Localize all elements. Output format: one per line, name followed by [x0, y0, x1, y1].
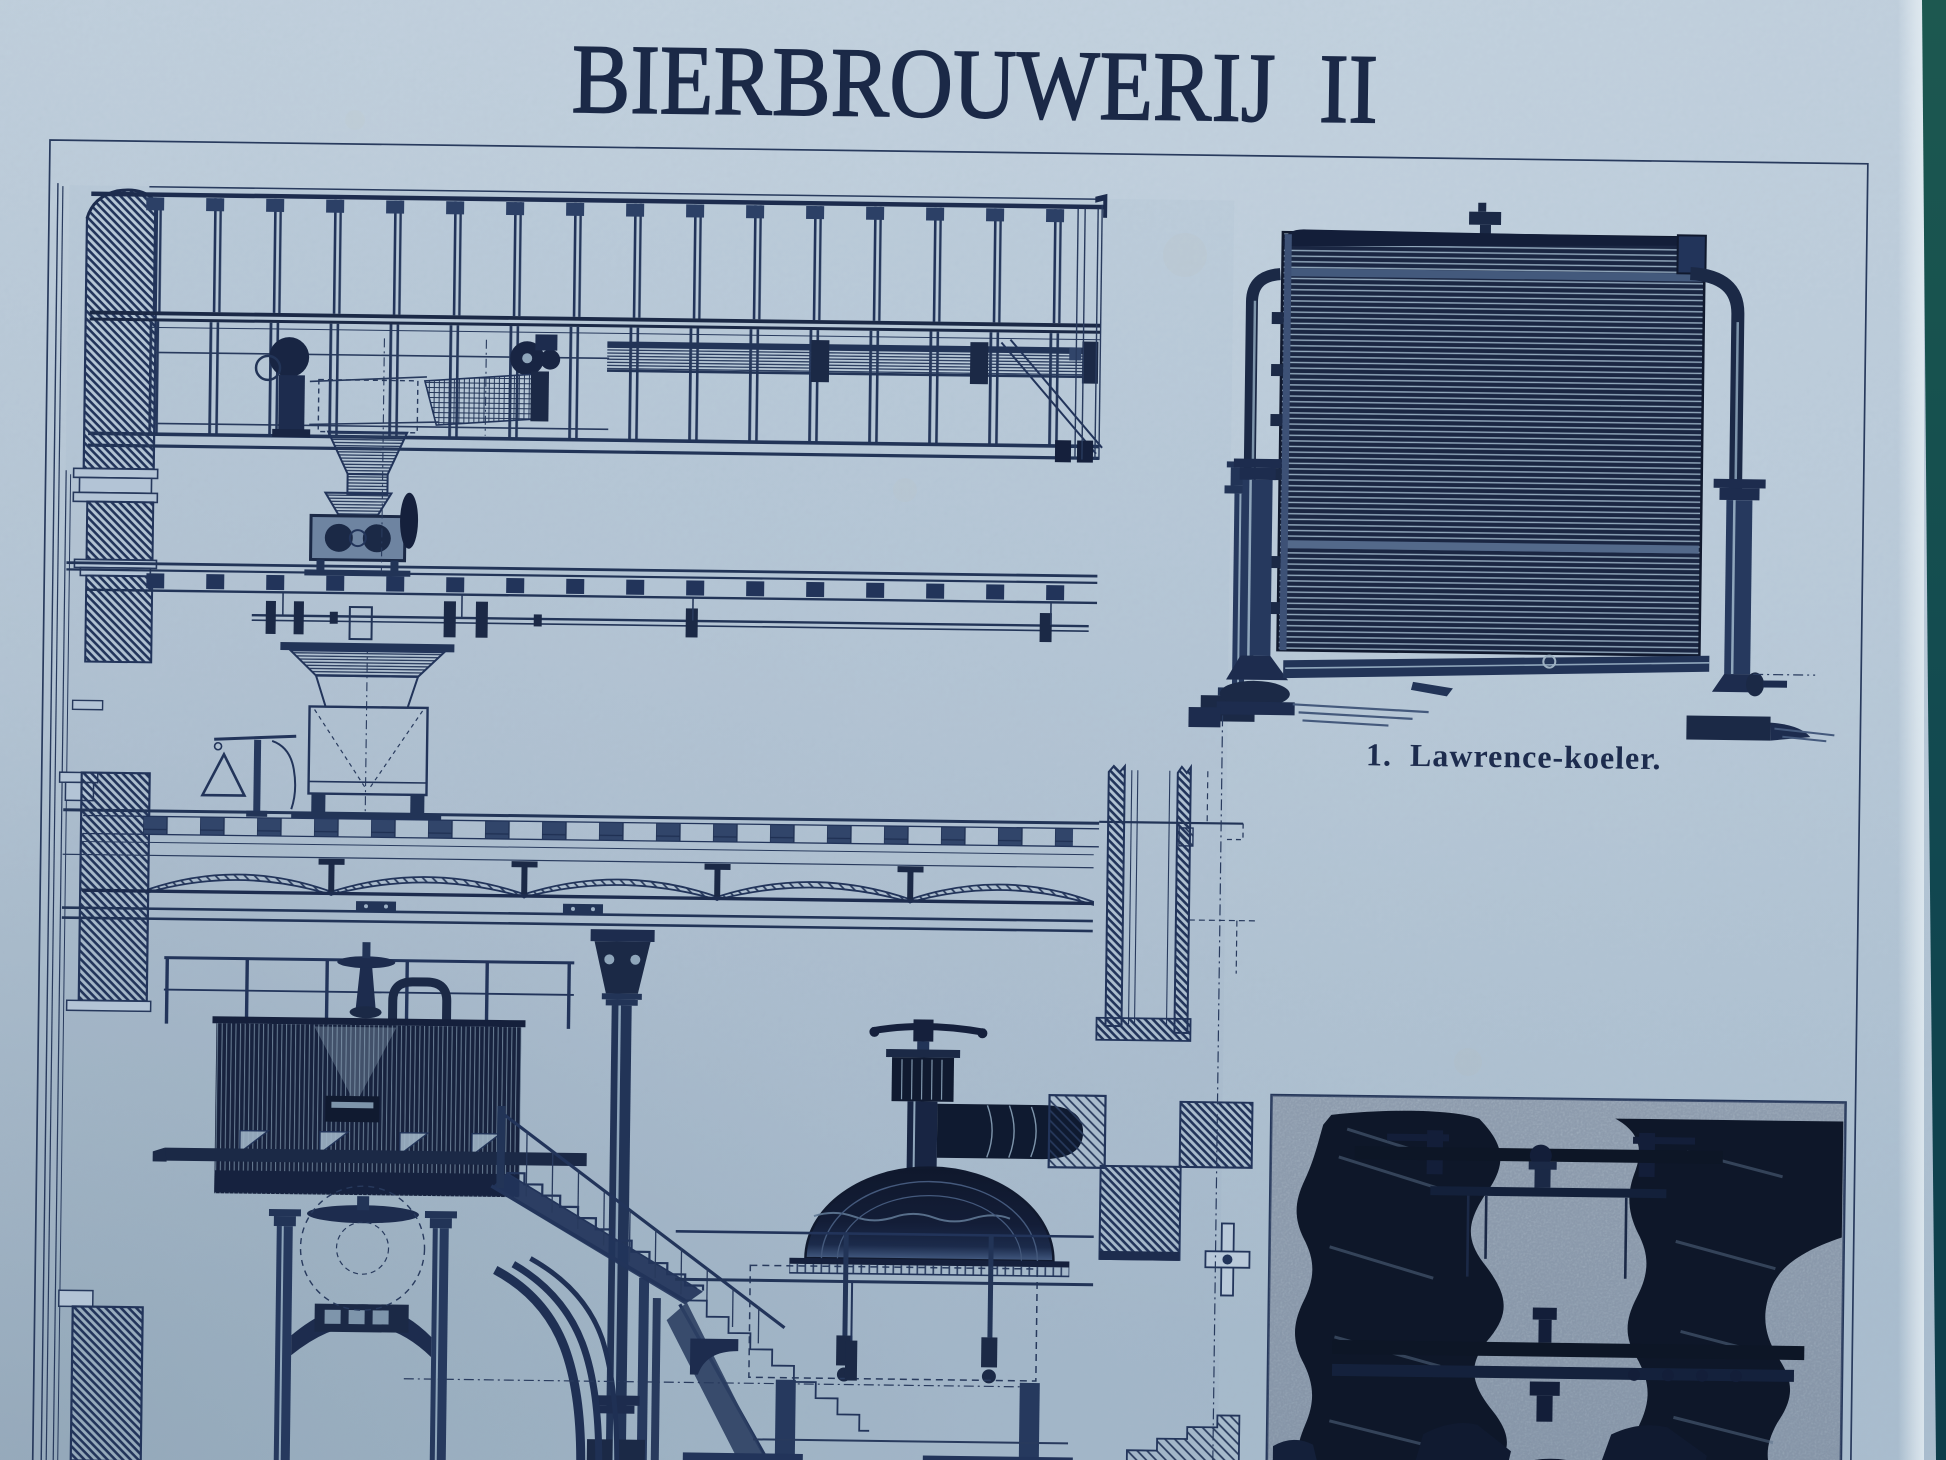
svg-text:BIERBROUWERIJ II: BIERBROUWERIJ II	[571, 25, 1378, 145]
svg-text:1. Lawrence-koeler.: 1. Lawrence-koeler.	[1366, 736, 1662, 776]
